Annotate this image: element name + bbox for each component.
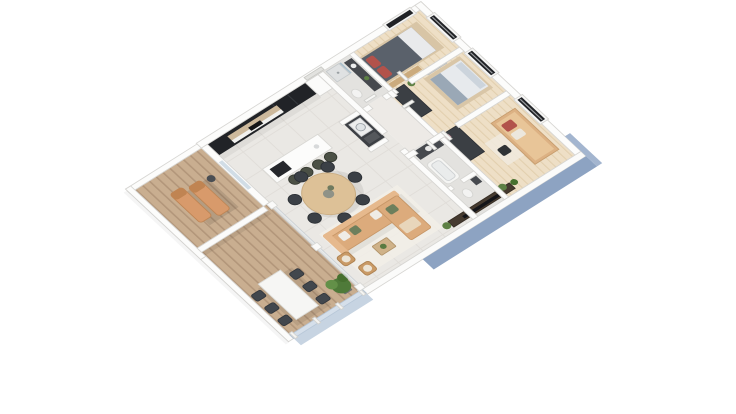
- floor-plan-3d-render: [0, 0, 736, 414]
- plan-projection-group: [121, 0, 603, 355]
- floor-plan-viewport: [0, 0, 736, 414]
